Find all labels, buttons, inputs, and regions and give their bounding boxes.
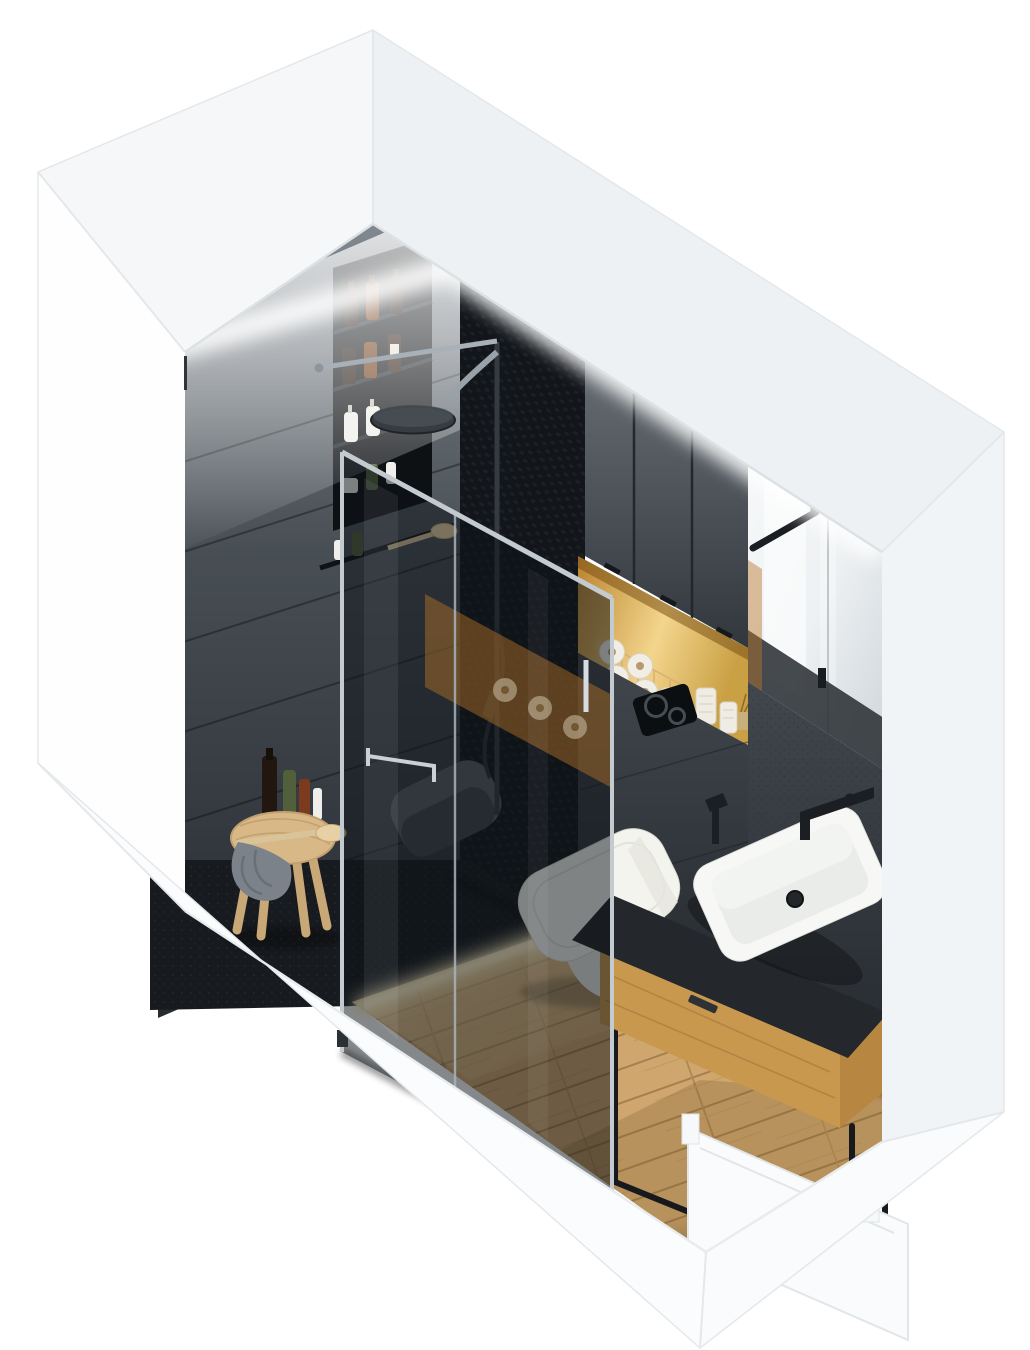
render-canvas	[0, 0, 1030, 1350]
mirror-hinge	[818, 668, 826, 688]
door-frame-post	[682, 1114, 699, 1144]
wall-seam-detail	[184, 356, 187, 390]
isometric-bathroom-scene	[0, 0, 1030, 1350]
support-bar-bracket	[315, 364, 324, 373]
basin-drain	[787, 891, 803, 907]
shell-right-face	[882, 432, 1004, 1142]
